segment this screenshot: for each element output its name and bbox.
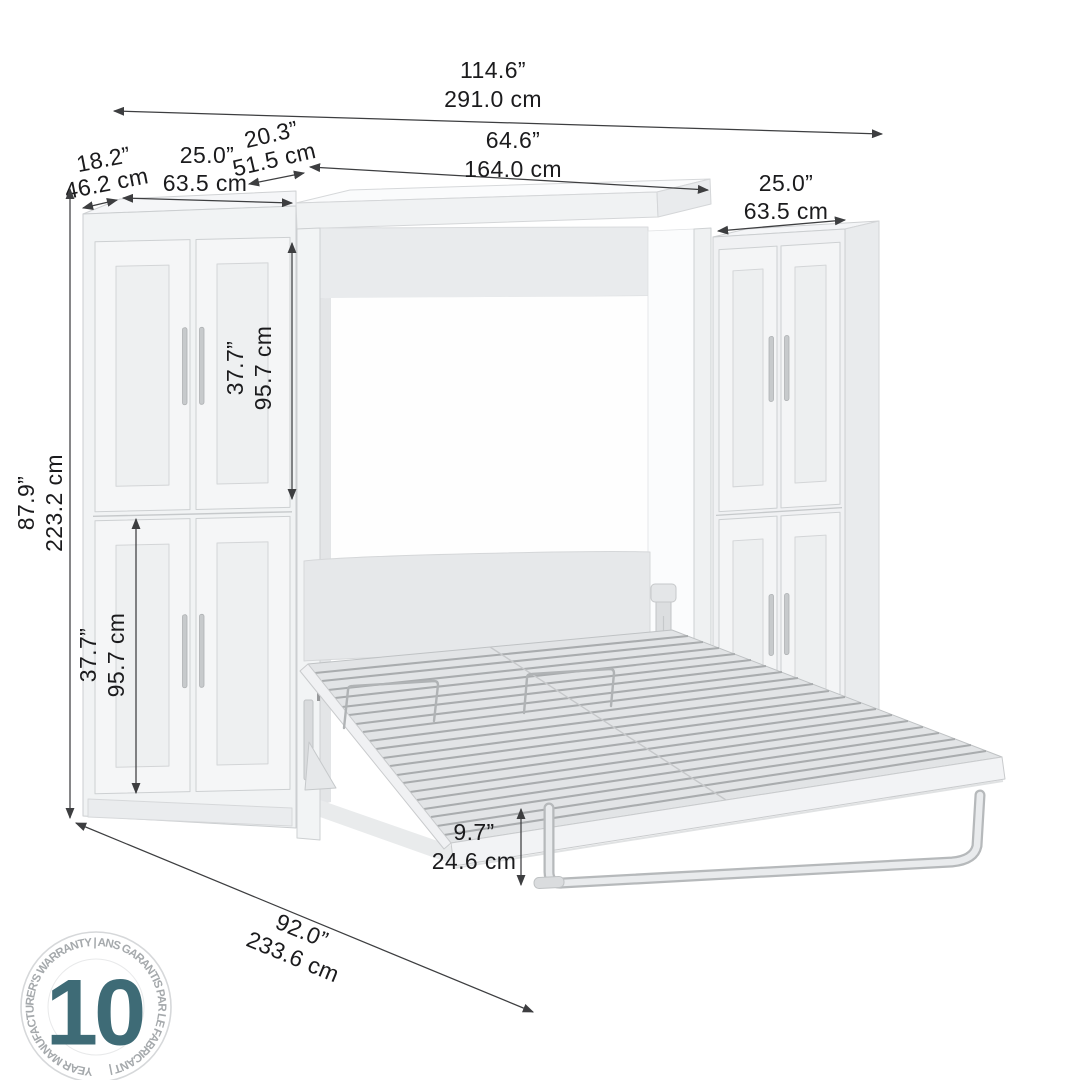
dim-height-cm: 223.2 cm <box>41 454 67 552</box>
dim-right-width-in: 25.0” <box>759 170 813 196</box>
dim-total-width-in: 114.6” <box>460 57 526 83</box>
dim-right-width: 25.0” 63.5 cm <box>718 170 845 231</box>
diagram-canvas: 114.6” 291.0 cm 64.6” 164.0 cm 20.3” 51.… <box>0 0 1080 1080</box>
dim-height: 87.9” 223.2 cm <box>13 189 70 818</box>
warranty-badge: YEAR MANUFACTURER'S WARRANTY | ANS GARAN… <box>21 932 171 1080</box>
dim-upper-section-in: 37.7” <box>222 341 248 395</box>
dim-bed-width-cm: 164.0 cm <box>464 156 562 182</box>
leg-foot-pad <box>534 876 565 889</box>
murphy-bed-illustration <box>83 179 1005 889</box>
dim-floor-clearance-cm: 24.6 cm <box>432 848 517 874</box>
dim-total-width: 114.6” 291.0 cm <box>114 57 882 134</box>
dim-upper-section-cm: 95.7 cm <box>250 326 276 411</box>
warranty-badge-years: 10 <box>46 960 143 1065</box>
left-cabinet <box>83 191 296 828</box>
interior-left-jamb <box>320 298 331 805</box>
dim-lower-section-cm: 95.7 cm <box>103 613 129 698</box>
dim-total-width-cm: 291.0 cm <box>444 86 542 112</box>
dim-height-in: 87.9” <box>13 476 39 530</box>
dim-right-width-cm: 63.5 cm <box>744 198 829 224</box>
product-dimension-diagram: 114.6” 291.0 cm 64.6” 164.0 cm 20.3” 51.… <box>0 0 1080 1080</box>
dim-left-width-cm: 63.5 cm <box>163 170 248 196</box>
bed-platform <box>300 630 1005 889</box>
dim-floor-clearance-in: 9.7” <box>453 819 494 845</box>
dim-bed-width-in: 64.6” <box>486 127 540 153</box>
interior-soffit <box>320 227 648 299</box>
dim-lower-section-in: 37.7” <box>75 628 101 682</box>
dim-left-width-in: 25.0” <box>180 142 234 168</box>
